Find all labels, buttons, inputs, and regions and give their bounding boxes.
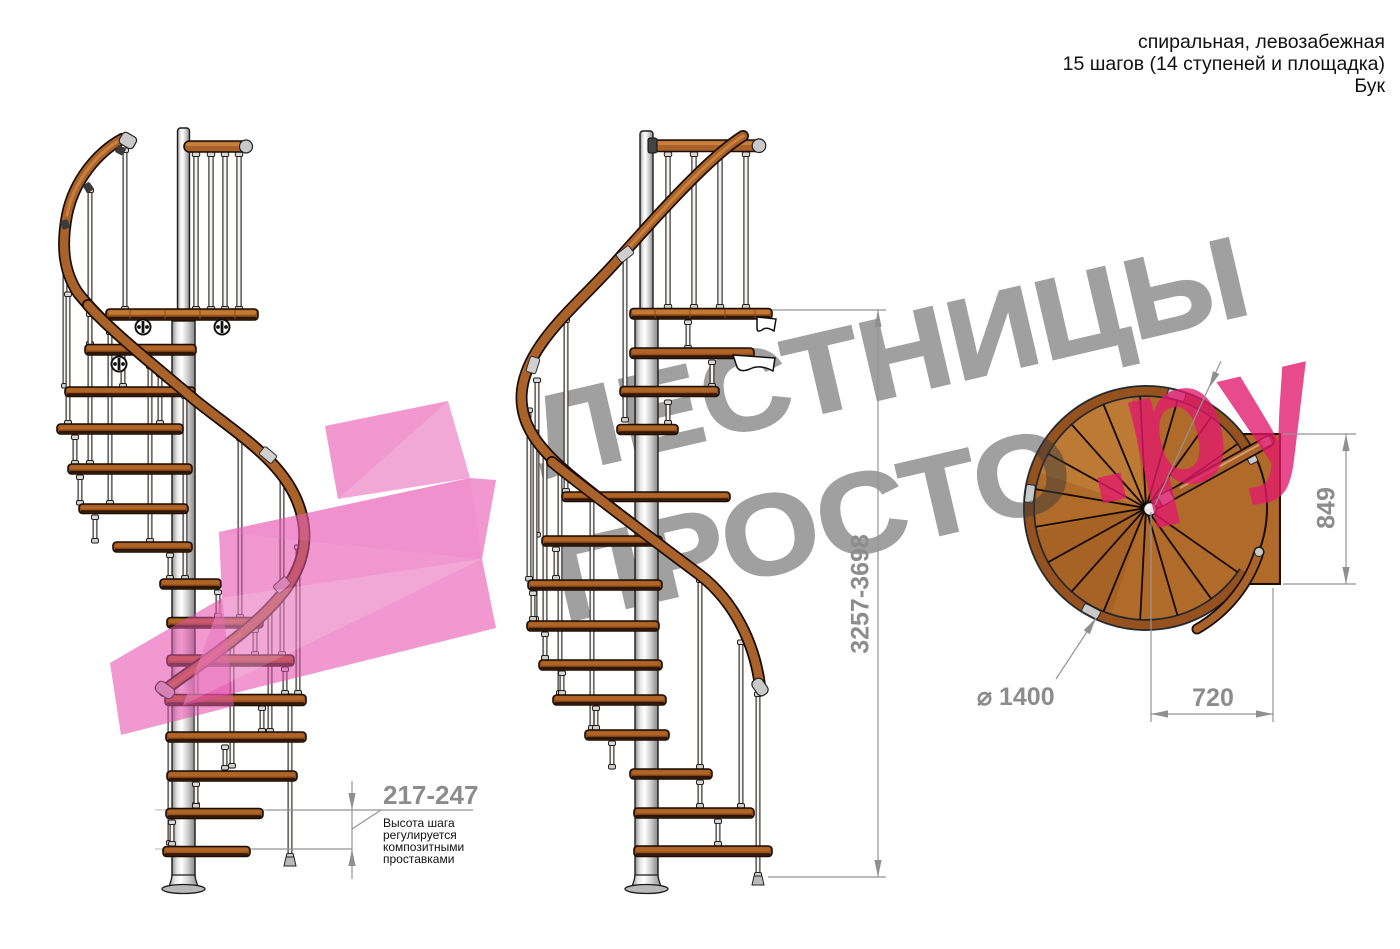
- svg-text:15 шагов (14 ступеней и площад: 15 шагов (14 ступеней и площадка): [1063, 53, 1385, 75]
- svg-text:217-247: 217-247: [383, 780, 478, 810]
- svg-text:849: 849: [1313, 487, 1341, 529]
- svg-text:Бук: Бук: [1354, 75, 1385, 97]
- svg-text:⌀ 1400: ⌀ 1400: [977, 683, 1055, 711]
- svg-text:720: 720: [1192, 684, 1234, 712]
- svg-text:спиральная, левозабежная: спиральная, левозабежная: [1138, 31, 1385, 53]
- svg-text:проставками: проставками: [383, 852, 454, 866]
- svg-text:3257-3698: 3257-3698: [847, 534, 875, 654]
